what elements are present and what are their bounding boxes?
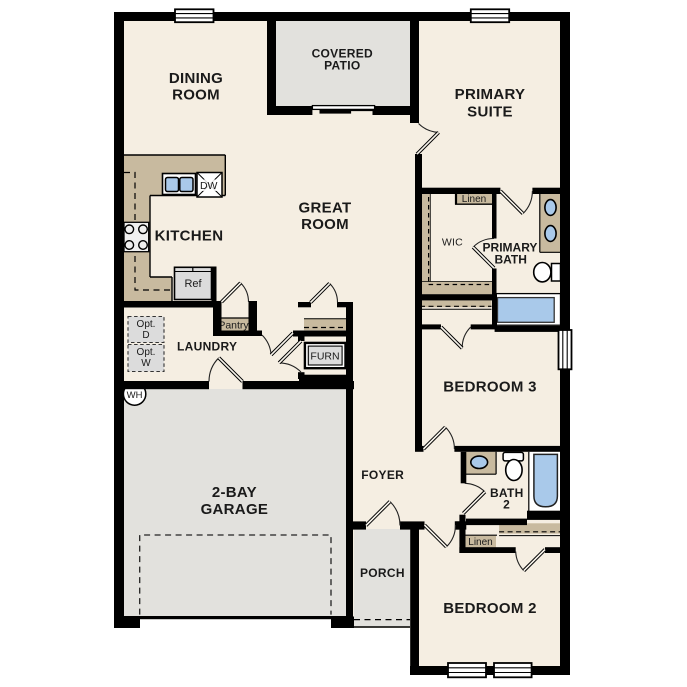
svg-text:Opt.: Opt. — [137, 347, 156, 358]
svg-text:PRIMARY: PRIMARY — [455, 86, 526, 103]
svg-text:ROOM: ROOM — [301, 216, 349, 233]
svg-text:WH: WH — [127, 390, 143, 401]
svg-text:2-BAY: 2-BAY — [212, 484, 257, 501]
svg-text:LAUNDRY: LAUNDRY — [177, 340, 237, 354]
svg-text:BEDROOM 2: BEDROOM 2 — [443, 600, 537, 617]
svg-text:2: 2 — [503, 498, 510, 512]
svg-text:DW: DW — [200, 180, 218, 192]
svg-text:KITCHEN: KITCHEN — [155, 228, 224, 245]
svg-text:PORCH: PORCH — [360, 566, 405, 580]
svg-text:SUITE: SUITE — [467, 104, 513, 121]
svg-text:PATIO: PATIO — [324, 58, 360, 72]
svg-text:GARAGE: GARAGE — [201, 501, 269, 518]
svg-text:WIC: WIC — [442, 237, 463, 249]
svg-text:Pantry: Pantry — [218, 320, 249, 332]
svg-text:GREAT: GREAT — [299, 200, 352, 217]
svg-text:DINING: DINING — [169, 70, 223, 87]
svg-text:FURN: FURN — [310, 351, 339, 363]
svg-text:D: D — [142, 330, 149, 341]
svg-text:BATH: BATH — [494, 253, 526, 267]
svg-text:W: W — [141, 358, 151, 369]
svg-text:Ref: Ref — [184, 278, 202, 290]
svg-text:Linen: Linen — [468, 537, 492, 548]
svg-text:BEDROOM 3: BEDROOM 3 — [443, 379, 537, 396]
svg-text:Linen: Linen — [462, 194, 486, 205]
svg-text:FOYER: FOYER — [361, 468, 404, 482]
svg-text:ROOM: ROOM — [172, 87, 220, 104]
svg-text:Opt.: Opt. — [137, 319, 156, 330]
